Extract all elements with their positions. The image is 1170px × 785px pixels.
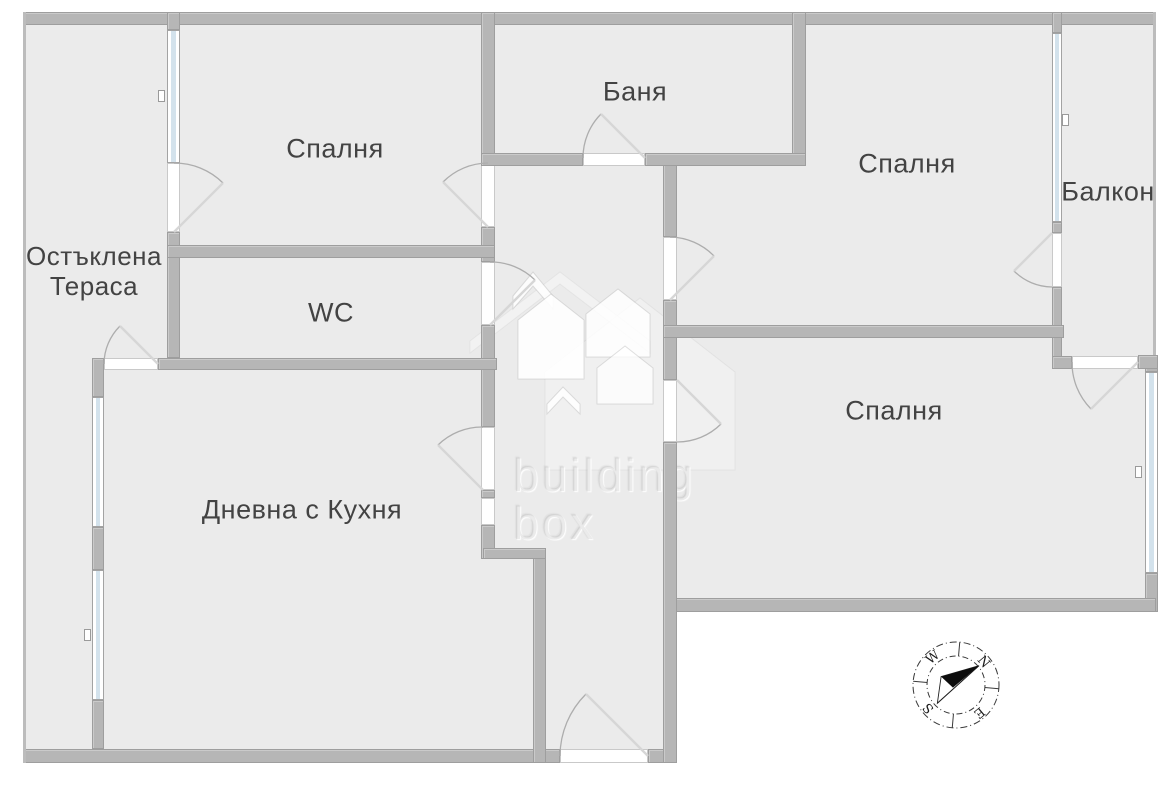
door-leaf xyxy=(677,380,721,424)
room-label-living-kitchen: Дневна с Кухня xyxy=(202,494,402,525)
door-leaf xyxy=(586,694,648,756)
room-label-balcony: Балкон xyxy=(1061,176,1155,207)
door-leaf xyxy=(601,114,645,158)
compass-south-label: S xyxy=(920,700,937,716)
door-arc xyxy=(104,326,120,364)
room-label-wc: WC xyxy=(308,297,354,328)
room-label-bedroom-right: Спалня xyxy=(845,395,942,426)
door-arc xyxy=(443,163,488,182)
door-arc xyxy=(1014,271,1052,287)
door-leaf xyxy=(1091,362,1138,409)
compass-north-label: N xyxy=(974,653,993,671)
door-arc xyxy=(438,427,483,445)
room-label-bathroom: Баня xyxy=(603,76,667,107)
floor-plan: building box xyxy=(0,0,1170,785)
compass-east-label: E xyxy=(970,703,987,721)
room-label-bedroom-top-right: Спалня xyxy=(858,148,955,179)
door-leaf xyxy=(120,326,158,364)
door-arc xyxy=(174,163,223,183)
door-leaf xyxy=(443,182,488,227)
door-leaf xyxy=(174,183,223,232)
room-label-terrace: Остъклена Тераса xyxy=(26,242,162,302)
door-leaf xyxy=(438,445,483,490)
door-leaf xyxy=(490,280,535,325)
compass-west-label: W xyxy=(923,647,943,667)
room-label-bedroom-top-left: Спалня xyxy=(286,133,383,164)
door-arc xyxy=(670,237,714,256)
door-arc xyxy=(677,424,721,442)
door-arc xyxy=(560,694,586,756)
door-arc xyxy=(1072,362,1091,409)
compass-rose-icon: N E S W xyxy=(904,633,1008,737)
door-arc xyxy=(583,114,601,158)
door-leaf xyxy=(1014,233,1052,271)
door-arc xyxy=(490,262,535,280)
door-leaf xyxy=(670,256,714,300)
